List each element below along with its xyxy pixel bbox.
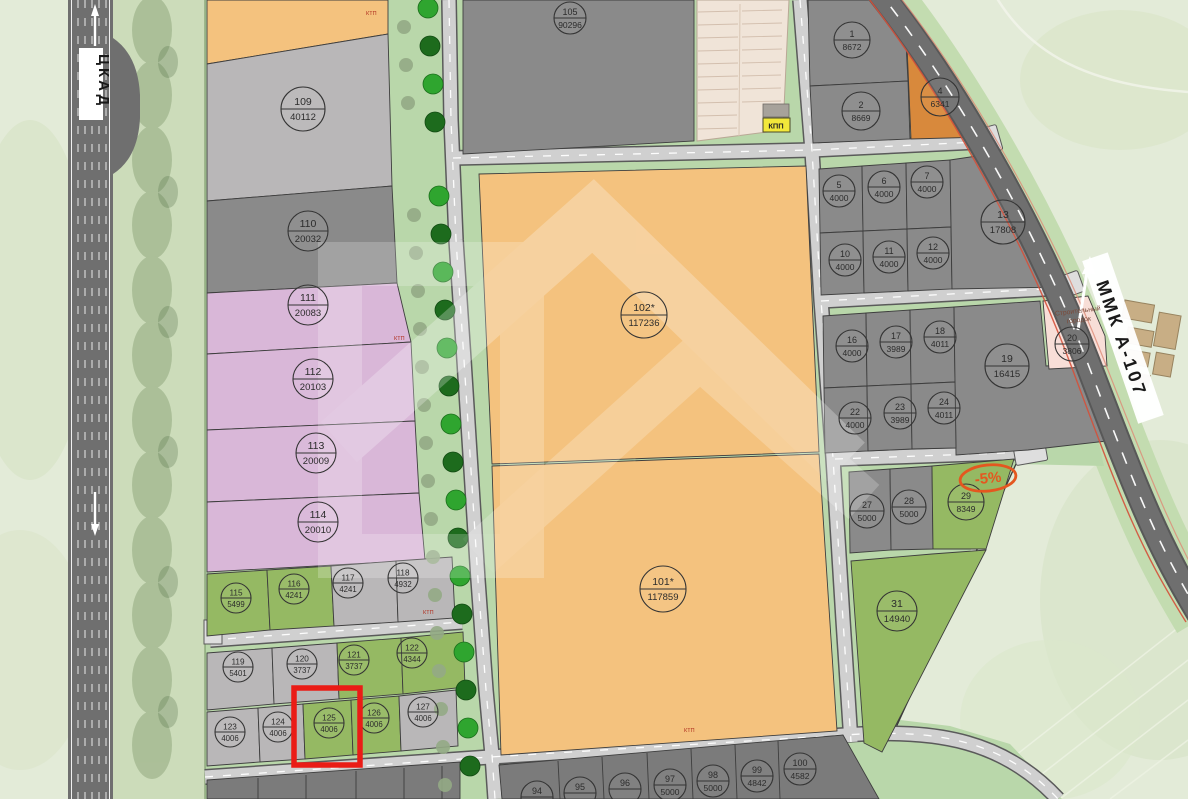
svg-text:4000: 4000 — [880, 259, 899, 269]
svg-text:13: 13 — [997, 209, 1009, 221]
plot-116-label: 1164241 — [279, 574, 309, 604]
svg-text:4006: 4006 — [221, 734, 238, 743]
plot-12-label: 124000 — [917, 237, 949, 269]
svg-text:96: 96 — [620, 778, 630, 788]
plot-96-label: 96 — [609, 773, 641, 799]
svg-text:2: 2 — [858, 100, 863, 110]
svg-text:111: 111 — [300, 292, 316, 304]
svg-text:23: 23 — [895, 402, 905, 412]
svg-text:8672: 8672 — [843, 42, 862, 52]
svg-text:5000: 5000 — [858, 513, 877, 523]
tree-icon — [423, 74, 443, 94]
plot-13-label: 1317808 — [981, 200, 1025, 244]
svg-text:24: 24 — [939, 397, 949, 407]
svg-text:90296: 90296 — [558, 20, 582, 30]
tree-icon — [454, 642, 474, 662]
plot-97-label: 975000 — [654, 769, 686, 799]
plot-2-label: 28669 — [842, 92, 880, 130]
plot-113-label: 11320009 — [296, 433, 336, 473]
svg-text:4842: 4842 — [748, 778, 767, 788]
svg-text:КТП: КТП — [423, 610, 434, 616]
ckad-label: ЦКАД — [95, 54, 112, 108]
plot-100-label: 1004582 — [784, 753, 816, 785]
svg-text:КТП: КТП — [394, 336, 405, 342]
tree-icon — [401, 96, 415, 110]
tree-icon — [419, 436, 433, 450]
svg-text:118: 118 — [396, 569, 409, 578]
tree-icon — [407, 208, 421, 222]
svg-text:16415: 16415 — [994, 369, 1020, 380]
svg-text:4241: 4241 — [339, 585, 356, 594]
svg-text:99: 99 — [752, 765, 762, 775]
plot-127-label: 1274006 — [408, 697, 438, 727]
svg-text:114: 114 — [310, 509, 327, 521]
plot-5-label: 54000 — [823, 175, 855, 207]
tree-icon — [443, 452, 463, 472]
svg-text:31: 31 — [891, 598, 903, 610]
tree-icon — [458, 718, 478, 738]
plot-16-label: 164000 — [836, 330, 868, 362]
svg-text:101*: 101* — [652, 576, 674, 588]
plot-7-label: 74000 — [911, 166, 943, 198]
plot-98-label: 985000 — [697, 765, 729, 797]
tree-icon — [432, 664, 446, 678]
svg-text:22: 22 — [850, 407, 860, 417]
svg-text:4582: 4582 — [791, 771, 810, 781]
svg-text:125: 125 — [322, 714, 336, 723]
plot-11-label: 114000 — [873, 241, 905, 273]
svg-text:5000: 5000 — [704, 783, 723, 793]
svg-text:117: 117 — [341, 574, 354, 583]
svg-text:29: 29 — [961, 491, 971, 501]
svg-text:4000: 4000 — [843, 348, 862, 358]
plot-24-label: 244011 — [928, 392, 960, 424]
plot-105-label: 10590296 — [554, 2, 586, 34]
tree-icon — [421, 474, 435, 488]
checkpoint-marker: КПП — [763, 104, 790, 132]
svg-text:110: 110 — [300, 218, 317, 230]
plot-31-label: 3114940 — [877, 591, 917, 631]
tree-icon — [446, 490, 466, 510]
svg-text:4241: 4241 — [285, 591, 302, 600]
tree-icon — [424, 512, 438, 526]
tree-icon — [420, 36, 440, 56]
svg-text:117859: 117859 — [648, 592, 679, 603]
plot-4-label: 46341 — [921, 78, 959, 116]
tree-icon — [397, 20, 411, 34]
svg-text:119: 119 — [231, 658, 244, 667]
plot-126-label: 1264006 — [359, 703, 389, 733]
svg-text:120: 120 — [295, 655, 309, 664]
svg-text:3737: 3737 — [293, 666, 310, 675]
svg-text:4006: 4006 — [269, 729, 286, 738]
svg-text:100: 100 — [792, 758, 807, 768]
svg-text:17: 17 — [891, 331, 901, 341]
svg-text:4006: 4006 — [414, 714, 431, 723]
svg-text:4000: 4000 — [918, 184, 937, 194]
plot-117-label: 1174241 — [333, 568, 363, 598]
tree-icon — [456, 680, 476, 700]
svg-text:122: 122 — [405, 644, 419, 653]
land-plot-master-plan: ЦКАД — [0, 0, 1188, 799]
tree-icon — [430, 626, 444, 640]
svg-text:20103: 20103 — [300, 382, 326, 393]
svg-text:6: 6 — [881, 176, 886, 186]
svg-text:28: 28 — [904, 496, 914, 506]
svg-text:105: 105 — [562, 7, 577, 17]
svg-text:11: 11 — [884, 246, 893, 256]
plot-119-label: 1195401 — [223, 652, 253, 682]
plot-17-label: 173989 — [880, 326, 912, 358]
svg-text:КТП: КТП — [366, 11, 377, 17]
svg-text:112: 112 — [305, 366, 322, 378]
svg-text:8349: 8349 — [957, 504, 976, 514]
svg-text:5000: 5000 — [900, 509, 919, 519]
plot-99-label: 994842 — [741, 760, 773, 792]
plot-20-label: 203806 — [1055, 327, 1089, 361]
svg-text:98: 98 — [708, 770, 718, 780]
plot-125-label: 1254006 — [314, 708, 344, 738]
svg-text:94: 94 — [532, 786, 542, 796]
tree-icon — [425, 112, 445, 132]
svg-text:3806: 3806 — [1063, 346, 1082, 356]
plot-109-label: 10940112 — [281, 87, 325, 131]
svg-text:3737: 3737 — [345, 662, 362, 671]
plot-115-label: 1155499 — [221, 583, 251, 613]
svg-text:4011: 4011 — [931, 339, 950, 349]
plot-18-label: 184011 — [924, 321, 956, 353]
svg-text:12: 12 — [928, 242, 938, 252]
svg-text:5: 5 — [836, 180, 841, 190]
plot-121-label: 1213737 — [339, 645, 369, 675]
tree-icon — [452, 604, 472, 624]
plot-123-label: 1234006 — [215, 717, 245, 747]
svg-text:КТП: КТП — [684, 728, 695, 734]
svg-text:109: 109 — [294, 96, 312, 108]
svg-text:124: 124 — [271, 718, 285, 727]
svg-text:4000: 4000 — [846, 420, 865, 430]
svg-text:4: 4 — [937, 86, 942, 96]
svg-text:-5%: -5% — [974, 469, 1002, 489]
svg-text:4011: 4011 — [935, 410, 954, 420]
svg-text:27: 27 — [862, 500, 872, 510]
plot-6-label: 64000 — [868, 171, 900, 203]
svg-text:7: 7 — [924, 171, 929, 181]
svg-text:16: 16 — [847, 335, 857, 345]
svg-text:6341: 6341 — [931, 99, 950, 109]
svg-text:1: 1 — [849, 29, 854, 39]
plot-10-label: 104000 — [829, 244, 861, 276]
plot-114-label: 11420010 — [298, 502, 338, 542]
svg-text:4932: 4932 — [394, 580, 411, 589]
svg-text:4344: 4344 — [403, 655, 421, 664]
tree-icon — [428, 588, 442, 602]
plot-1-label: 18672 — [834, 22, 870, 58]
tree-icon — [431, 224, 451, 244]
svg-text:4000: 4000 — [836, 262, 855, 272]
svg-text:5401: 5401 — [229, 669, 246, 678]
svg-text:4006: 4006 — [365, 720, 382, 729]
svg-text:5499: 5499 — [227, 600, 244, 609]
plot-111-label: 11120083 — [288, 285, 328, 325]
svg-text:20009: 20009 — [303, 456, 329, 467]
plot-19-label: 1916415 — [985, 344, 1029, 388]
tree-icon — [436, 740, 450, 754]
svg-text:20032: 20032 — [295, 234, 321, 245]
svg-text:115: 115 — [229, 589, 242, 598]
checkpoint-label: КПП — [768, 122, 783, 131]
svg-text:17808: 17808 — [990, 225, 1016, 236]
svg-text:95: 95 — [575, 782, 585, 792]
plot-120-label: 1203737 — [287, 649, 317, 679]
plot-27-label: 275000 — [850, 494, 884, 528]
svg-text:8669: 8669 — [852, 113, 871, 123]
svg-text:4000: 4000 — [924, 255, 943, 265]
tree-icon — [429, 186, 449, 206]
svg-text:20083: 20083 — [295, 308, 321, 319]
plot-112-label: 11220103 — [293, 359, 333, 399]
plot-102-label: 102*117236 — [621, 292, 667, 338]
tree-icon — [399, 58, 413, 72]
svg-text:102*: 102* — [633, 302, 655, 314]
svg-text:20010: 20010 — [305, 525, 331, 536]
tree-icon — [411, 284, 425, 298]
tree-icon — [460, 756, 480, 776]
tree-icon — [418, 0, 438, 18]
svg-text:14940: 14940 — [884, 614, 910, 625]
tree-icon — [441, 414, 461, 434]
svg-text:116: 116 — [287, 580, 300, 589]
svg-text:113: 113 — [308, 440, 325, 452]
svg-text:10: 10 — [840, 249, 850, 259]
svg-text:3989: 3989 — [891, 415, 910, 425]
svg-text:117236: 117236 — [629, 318, 660, 329]
svg-text:3989: 3989 — [887, 344, 906, 354]
svg-text:4006: 4006 — [320, 725, 337, 734]
svg-text:97: 97 — [665, 774, 675, 784]
svg-text:4000: 4000 — [830, 193, 849, 203]
plot-124-label: 1244006 — [263, 712, 293, 742]
svg-text:20: 20 — [1067, 333, 1077, 343]
plot-110-label: 11020032 — [288, 211, 328, 251]
plot-23-label: 233989 — [884, 397, 916, 429]
svg-text:40112: 40112 — [290, 112, 316, 123]
svg-text:5000: 5000 — [661, 787, 680, 797]
plot-22-label: 224000 — [839, 402, 871, 434]
svg-text:19: 19 — [1001, 353, 1013, 365]
svg-text:126: 126 — [367, 709, 381, 718]
tree-icon — [438, 778, 452, 792]
plot-28-label: 285000 — [892, 490, 926, 524]
plot-101-label: 101*117859 — [640, 566, 686, 612]
svg-text:18: 18 — [935, 326, 945, 336]
svg-text:121: 121 — [347, 651, 361, 660]
plot-118-label: 1184932 — [388, 563, 418, 593]
svg-text:127: 127 — [416, 703, 430, 712]
svg-text:4000: 4000 — [875, 189, 894, 199]
svg-text:123: 123 — [223, 723, 237, 732]
plot-122-label: 1224344 — [397, 638, 427, 668]
